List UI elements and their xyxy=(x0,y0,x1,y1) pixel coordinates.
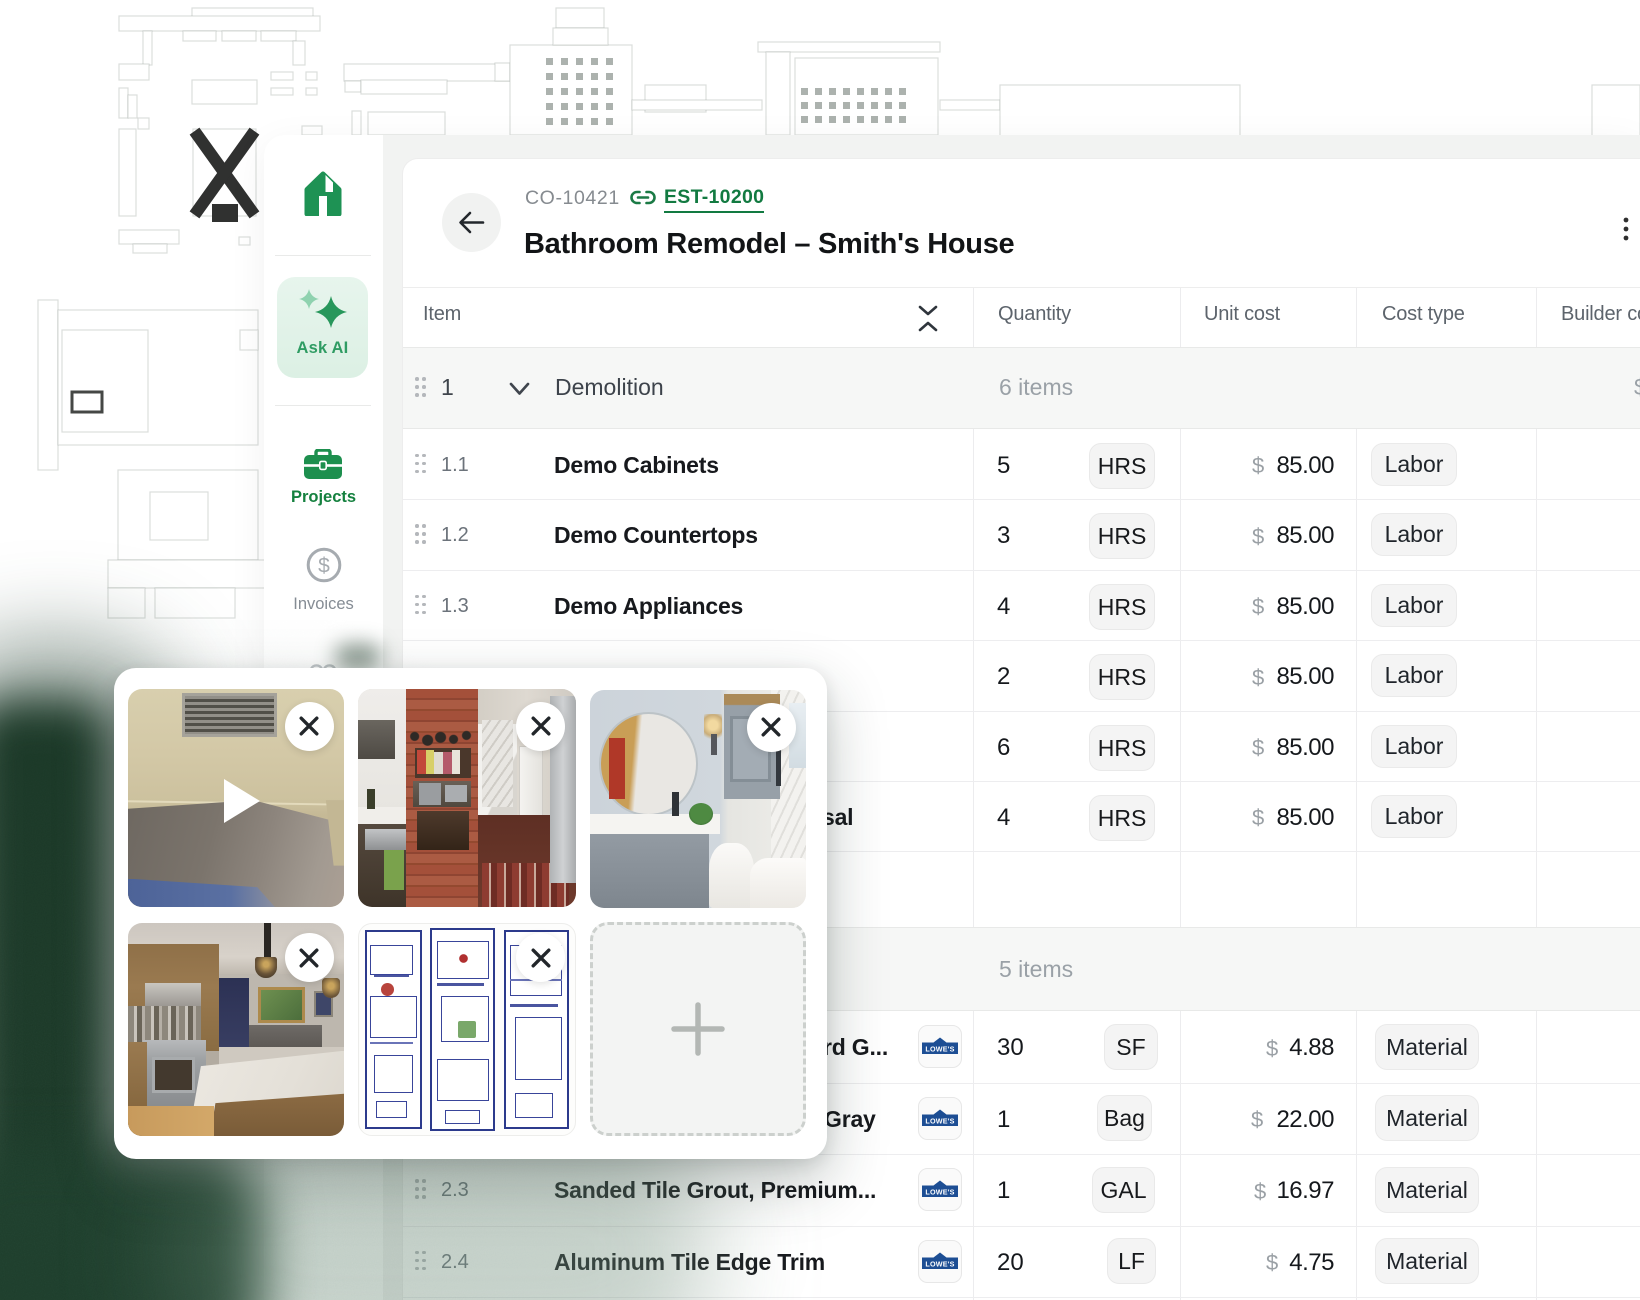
svg-text:LOWE'S: LOWE'S xyxy=(925,1045,954,1054)
svg-text:LOWE'S: LOWE'S xyxy=(925,1188,954,1197)
svg-text:$: $ xyxy=(318,555,330,578)
svg-text:LOWE'S: LOWE'S xyxy=(925,1259,954,1268)
svg-text:LOWE'S: LOWE'S xyxy=(925,1116,954,1125)
